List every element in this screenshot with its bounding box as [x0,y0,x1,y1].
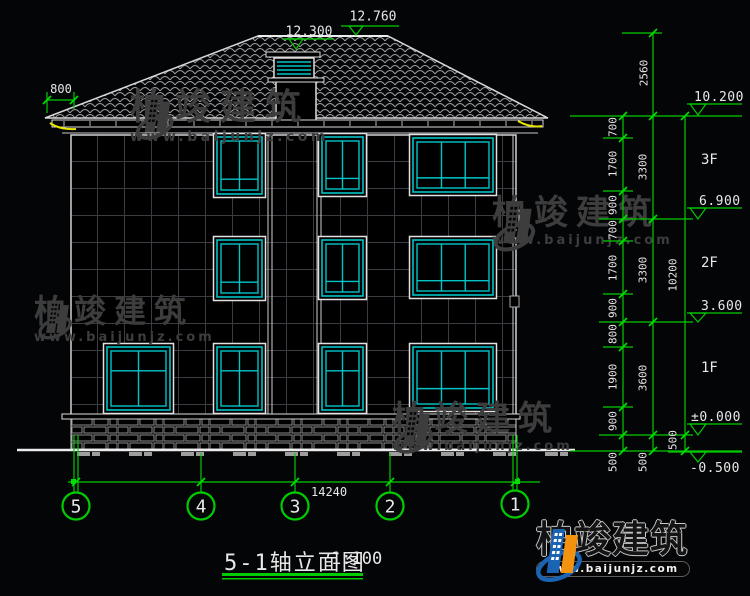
dimension-lines [0,0,750,596]
axis-bubble-5: 5 [71,497,82,518]
level-value: -0.500 [690,461,740,476]
dim: 1700 [607,255,620,282]
level-value: ±0.000 [691,410,741,425]
level-value: 6.900 [699,194,741,209]
axis-bubble-4: 4 [196,497,207,518]
brand-logo-icon [536,521,590,587]
level-value: 3.600 [701,299,743,314]
dim: 700 [607,117,620,137]
axis-bubble-1: 1 [510,495,521,516]
dim: 1900 [607,364,620,391]
dim: 10200 [667,258,680,291]
dim: 800 [607,324,620,344]
dim: 3600 [637,365,650,392]
floor-label: 2F [701,255,718,271]
drawing-scale: 1:100 [331,549,382,569]
dim: 900 [607,195,620,215]
dim: 500 [637,452,650,472]
cad-elevation-screenshot: 柏竣建筑 www.baijunjz.com 柏竣建筑 www.baijunjz.… [0,0,750,596]
dim-eave-overhang: 800 [50,82,72,96]
dim: 500 [607,452,620,472]
level-dormer: 12.300 [286,25,333,40]
dim: 3300 [637,154,650,181]
dim-total-width: 14240 [311,485,347,499]
dim: 700 [607,220,620,240]
floor-label: 3F [701,152,718,168]
dim: 500 [667,430,680,450]
axis-bubble-2: 2 [385,497,396,518]
floor-label: 1F [701,360,718,376]
dim: 900 [607,411,620,431]
dim: 3300 [637,257,650,284]
axis-bubble-3: 3 [290,497,301,518]
level-ridge: 12.760 [350,10,397,25]
level-value: 10.200 [694,90,744,105]
dim-chain-top: 2560 [638,60,651,87]
brand-logo: 柏竣建筑 www.baijunjz.com [536,521,690,577]
dim: 900 [607,298,620,318]
dim: 1700 [607,151,620,178]
